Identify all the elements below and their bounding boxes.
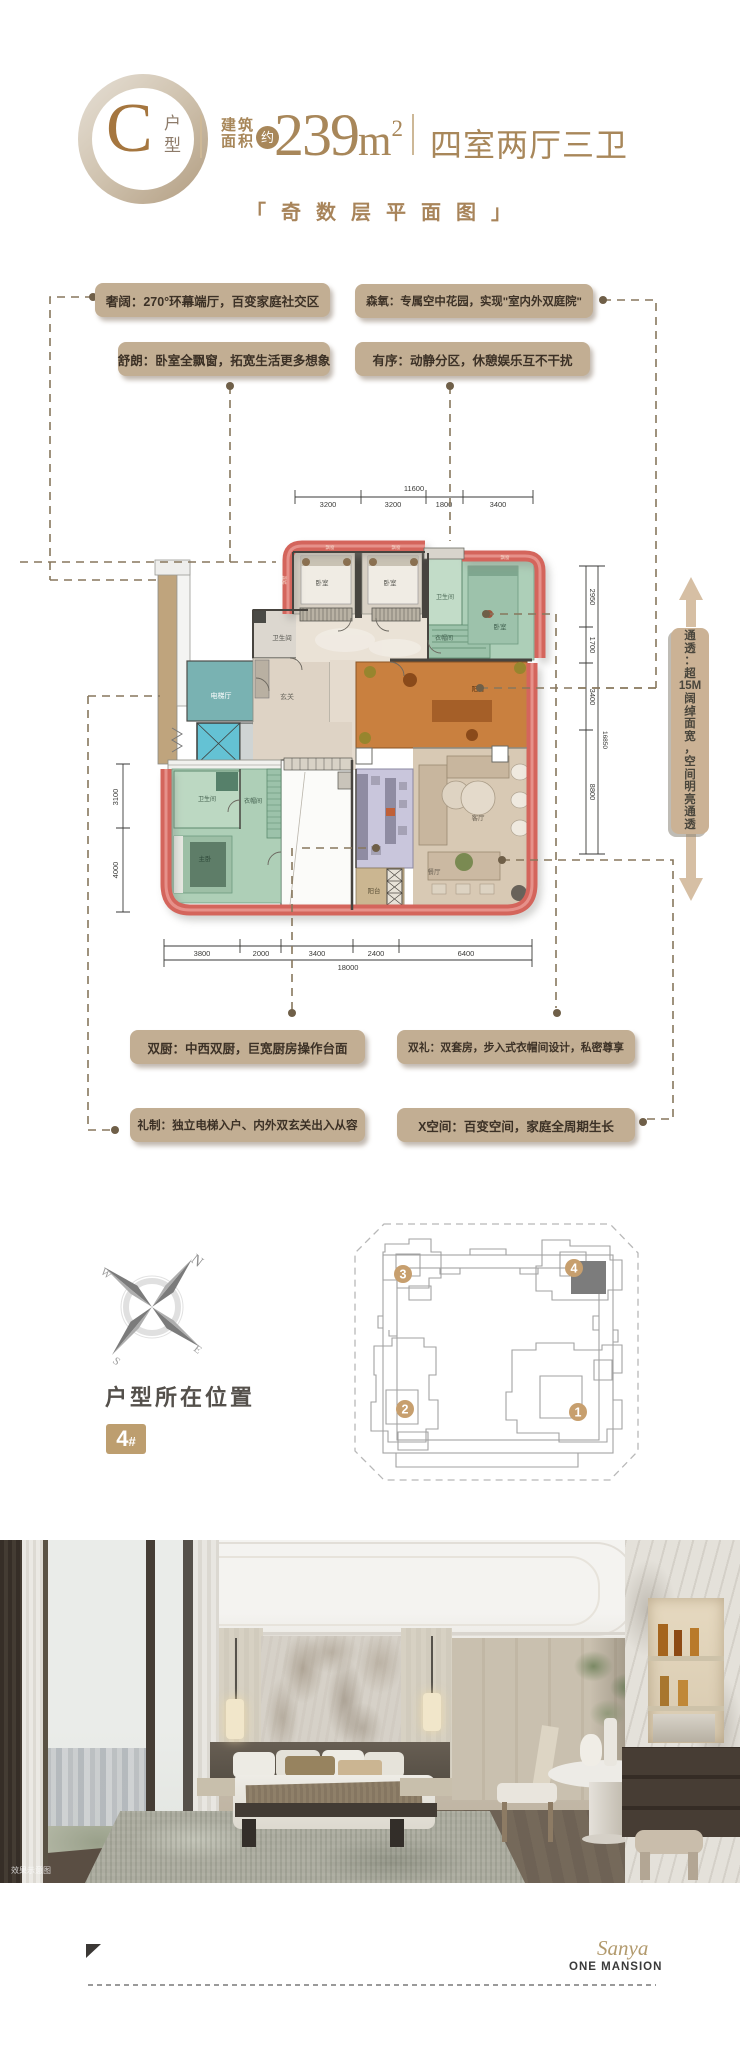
svg-text:3400: 3400 [490, 500, 507, 509]
svg-text:11600: 11600 [404, 484, 424, 493]
svg-text:客厅: 客厅 [472, 813, 486, 822]
svg-text:2400: 2400 [368, 949, 385, 958]
svg-text:飘窗: 飘窗 [392, 544, 401, 551]
svg-text:阳台: 阳台 [368, 886, 381, 895]
svg-text:S: S [110, 1355, 122, 1368]
svg-text:飘窗: 飘窗 [326, 544, 335, 551]
svg-text:3200: 3200 [320, 500, 337, 509]
svg-text:卫生间: 卫生间 [198, 795, 216, 803]
svg-text:3200: 3200 [385, 500, 402, 509]
svg-text:N: N [188, 1252, 207, 1271]
svg-text:飘窗: 飘窗 [501, 554, 510, 561]
svg-text:4000: 4000 [111, 862, 120, 879]
svg-text:1: 1 [575, 1406, 582, 1420]
svg-text:衣帽间: 衣帽间 [435, 634, 453, 642]
svg-text:3400: 3400 [309, 949, 326, 958]
svg-text:2950: 2950 [588, 589, 597, 606]
svg-text:衣帽间: 衣帽间 [244, 797, 262, 805]
svg-text:卧室: 卧室 [384, 578, 398, 587]
svg-text:卫生间: 卫生间 [436, 593, 454, 601]
svg-text:主卧: 主卧 [199, 854, 213, 863]
svg-text:1700: 1700 [588, 637, 597, 654]
svg-text:3100: 3100 [111, 789, 120, 806]
svg-text:E: E [191, 1343, 204, 1357]
svg-text:6400: 6400 [458, 949, 475, 958]
svg-text:餐厅: 餐厅 [428, 867, 442, 876]
svg-text:3400: 3400 [588, 689, 597, 706]
svg-text:4: 4 [571, 1262, 578, 1276]
svg-text:3: 3 [400, 1268, 407, 1282]
svg-text:16850: 16850 [601, 731, 608, 749]
svg-text:W: W [98, 1266, 114, 1282]
svg-text:电梯厅: 电梯厅 [211, 691, 232, 700]
svg-text:8800: 8800 [588, 784, 597, 801]
svg-text:卧室: 卧室 [316, 578, 330, 587]
svg-text:18000: 18000 [338, 963, 359, 972]
svg-text:卫生间: 卫生间 [272, 633, 292, 642]
svg-text:2: 2 [402, 1403, 409, 1417]
svg-text:卧室: 卧室 [494, 622, 508, 631]
svg-text:2000: 2000 [253, 949, 270, 958]
svg-text:飘窗: 飘窗 [281, 575, 288, 584]
svg-text:玄关: 玄关 [280, 692, 294, 701]
svg-text:3800: 3800 [194, 949, 211, 958]
